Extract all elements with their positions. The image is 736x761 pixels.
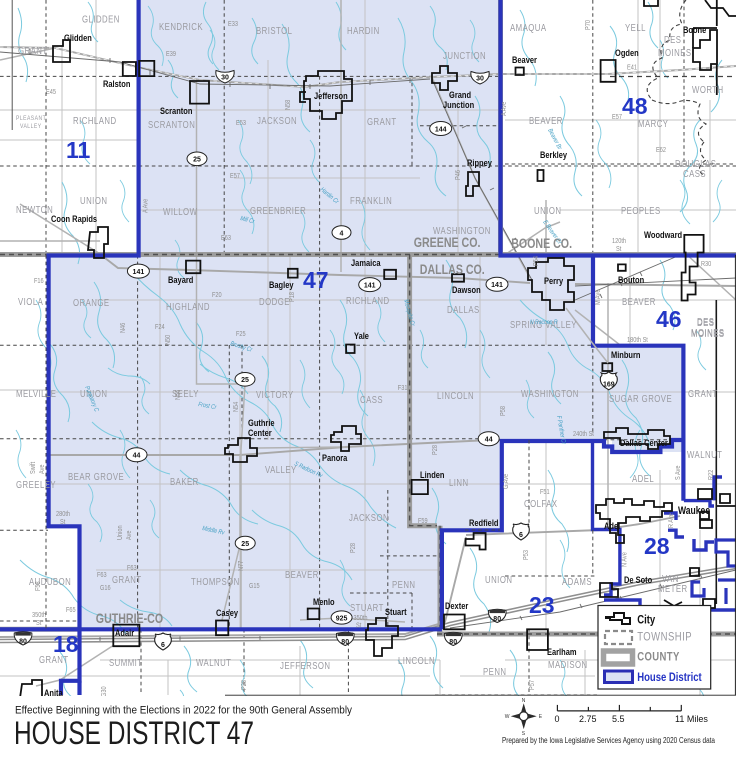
svg-text:80: 80: [493, 616, 501, 623]
svg-text:LINCOLN: LINCOLN: [437, 390, 474, 401]
svg-text:N56: N56: [174, 389, 182, 400]
svg-text:Union: Union: [116, 525, 124, 540]
svg-text:4: 4: [340, 230, 344, 237]
svg-text:5.5: 5.5: [612, 714, 625, 724]
svg-text:N54: N54: [232, 401, 240, 412]
svg-text:Rippey: Rippey: [467, 157, 492, 168]
svg-text:GRANT: GRANT: [367, 116, 397, 127]
svg-text:PEOPLES: PEOPLES: [621, 205, 661, 216]
svg-text:Junction: Junction: [443, 99, 474, 110]
svg-text:St: St: [36, 619, 41, 627]
svg-text:925: 925: [336, 615, 348, 622]
svg-text:P28: P28: [349, 543, 357, 553]
svg-text:BRISTOL: BRISTOL: [256, 25, 292, 36]
svg-text:Coon Rapids: Coon Rapids: [51, 213, 97, 224]
svg-text:WALNUT: WALNUT: [687, 449, 722, 460]
svg-text:Adel: Adel: [604, 520, 620, 531]
svg-text:A Ave: A Ave: [500, 101, 508, 116]
svg-text:St: St: [616, 245, 621, 253]
svg-text:BEAVER: BEAVER: [622, 296, 656, 307]
svg-text:30: 30: [476, 75, 484, 82]
svg-text:0: 0: [555, 714, 560, 724]
svg-text:Beaver: Beaver: [512, 54, 538, 65]
svg-text:PENN: PENN: [483, 666, 507, 677]
svg-text:DES: DES: [697, 316, 714, 327]
svg-text:F63: F63: [97, 571, 107, 579]
svg-text:ADEL: ADEL: [632, 473, 654, 484]
svg-text:VICTORY: VICTORY: [256, 389, 294, 400]
svg-text:Jamaica: Jamaica: [351, 257, 381, 268]
svg-text:VALLEY: VALLEY: [265, 464, 297, 475]
svg-text:Boone: Boone: [683, 24, 706, 35]
svg-text:GRANT: GRANT: [112, 574, 142, 585]
svg-text:N46: N46: [119, 322, 127, 333]
svg-text:BAKER: BAKER: [170, 476, 199, 487]
svg-text:SUGAR GROVE: SUGAR GROVE: [609, 393, 672, 404]
svg-text:Ogden: Ogden: [615, 47, 639, 58]
svg-text:E53: E53: [236, 119, 246, 127]
svg-text:47: 47: [303, 267, 329, 293]
svg-text:S Ave: S Ave: [674, 465, 682, 480]
svg-text:GRANT: GRANT: [688, 388, 718, 399]
svg-text:25: 25: [241, 541, 249, 548]
svg-text:350th: 350th: [32, 611, 46, 619]
svg-text:Panora: Panora: [322, 452, 348, 463]
svg-text:N Racoon R: N Racoon R: [530, 320, 558, 327]
svg-text:80: 80: [19, 639, 27, 646]
svg-text:E63: E63: [221, 234, 231, 242]
svg-text:Ave: Ave: [125, 530, 133, 540]
svg-text:MADISON: MADISON: [548, 659, 588, 670]
svg-text:Linden: Linden: [420, 469, 445, 480]
svg-text:F31: F31: [398, 384, 408, 392]
svg-text:F24: F24: [155, 323, 165, 331]
svg-text:Glidden: Glidden: [64, 32, 92, 43]
svg-text:F63: F63: [127, 564, 137, 572]
svg-text:Waukee: Waukee: [678, 505, 711, 517]
svg-text:E57: E57: [230, 172, 240, 180]
svg-text:Adair: Adair: [115, 627, 135, 638]
svg-text:COLFAX: COLFAX: [524, 498, 558, 509]
svg-text:BEAVER: BEAVER: [285, 569, 319, 580]
svg-text:UNION: UNION: [80, 195, 107, 206]
svg-text:Minburn: Minburn: [611, 349, 640, 360]
svg-text:Perry: Perry: [544, 275, 563, 286]
svg-text:HARDIN: HARDIN: [347, 25, 380, 36]
svg-text:VALLEY: VALLEY: [20, 124, 42, 131]
svg-text:141: 141: [133, 269, 145, 276]
svg-text:LINN: LINN: [449, 477, 469, 488]
svg-text:18: 18: [53, 631, 79, 657]
svg-text:JACKSON: JACKSON: [349, 512, 389, 523]
svg-text:48: 48: [622, 93, 648, 119]
svg-text:141: 141: [491, 282, 503, 289]
svg-text:DODGE: DODGE: [259, 296, 290, 307]
svg-text:Menlo: Menlo: [313, 596, 335, 607]
svg-text:G15: G15: [249, 582, 260, 590]
svg-text:MELVILLE: MELVILLE: [16, 388, 56, 399]
svg-text:25: 25: [241, 377, 249, 384]
svg-text:E62: E62: [656, 146, 666, 154]
svg-text:FRANKLIN: FRANKLIN: [350, 195, 392, 206]
svg-text:VIOLA: VIOLA: [18, 296, 43, 307]
svg-text:N58: N58: [284, 99, 292, 110]
svg-text:LINCOLN: LINCOLN: [398, 655, 435, 666]
svg-text:E41: E41: [627, 64, 637, 72]
svg-text:G Ave: G Ave: [502, 473, 510, 489]
svg-text:Stuart: Stuart: [385, 606, 407, 617]
svg-text:THOMPSON: THOMPSON: [191, 576, 240, 587]
svg-text:MOINES: MOINES: [658, 47, 692, 58]
svg-text:28: 28: [644, 533, 670, 559]
svg-text:F59: F59: [418, 517, 428, 525]
svg-text:WILLOW: WILLOW: [163, 206, 197, 217]
svg-text:Bayard: Bayard: [168, 274, 193, 285]
svg-text:WASHINGTON: WASHINGTON: [521, 388, 579, 399]
svg-text:AMAQUA: AMAQUA: [510, 22, 547, 33]
svg-text:Berkley: Berkley: [540, 149, 567, 160]
svg-text:Center: Center: [248, 427, 272, 438]
svg-text:GUTHRIE-CO: GUTHRIE-CO: [96, 611, 164, 627]
svg-text:UNION: UNION: [485, 574, 512, 585]
svg-text:JEFFERSON: JEFFERSON: [280, 660, 331, 671]
svg-text:N77: N77: [237, 560, 245, 571]
svg-text:N Ave: N Ave: [621, 552, 629, 567]
svg-text:120th: 120th: [612, 237, 626, 245]
svg-text:30: 30: [221, 74, 229, 81]
svg-text:44: 44: [133, 453, 141, 460]
svg-text:BOONE CO.: BOONE CO.: [511, 236, 572, 252]
svg-text:HOUSE DISTRICT 47: HOUSE DISTRICT 47: [14, 715, 254, 751]
svg-text:RICHLAND: RICHLAND: [346, 295, 390, 306]
svg-text:N50: N50: [164, 334, 172, 345]
svg-text:Bagley: Bagley: [269, 279, 294, 290]
svg-text:St: St: [356, 622, 361, 630]
svg-text:Redfield: Redfield: [469, 517, 498, 528]
svg-text:P54: P54: [532, 256, 540, 266]
svg-text:P58: P58: [499, 406, 507, 416]
svg-text:240th St: 240th St: [573, 430, 594, 438]
svg-text:2.75: 2.75: [579, 714, 597, 724]
svg-text:P28: P28: [240, 680, 248, 690]
svg-text:F51: F51: [540, 488, 550, 496]
svg-text:TOWNSHIP: TOWNSHIP: [637, 630, 692, 643]
svg-text:E57: E57: [612, 113, 622, 121]
svg-text:Earlham: Earlham: [547, 646, 577, 657]
svg-text:80: 80: [449, 639, 457, 646]
svg-text:R30: R30: [701, 260, 712, 268]
svg-text:P70: P70: [584, 20, 592, 30]
svg-text:GREELEY: GREELEY: [16, 479, 56, 490]
svg-text:E45: E45: [46, 88, 56, 96]
svg-text:PLEASANT: PLEASANT: [16, 116, 46, 123]
svg-text:Woodward: Woodward: [644, 229, 682, 240]
svg-text:Jefferson: Jefferson: [314, 90, 348, 101]
svg-text:6: 6: [161, 642, 165, 649]
svg-text:G16: G16: [100, 584, 111, 592]
svg-text:Casey: Casey: [216, 607, 238, 618]
svg-text:DALLAS CO.: DALLAS CO.: [420, 262, 485, 278]
svg-text:BEAR GROVE: BEAR GROVE: [68, 471, 124, 482]
svg-text:E33: E33: [228, 20, 238, 28]
svg-text:STUART: STUART: [350, 602, 384, 613]
svg-text:F25: F25: [236, 330, 246, 338]
svg-text:GREENE CO.: GREENE CO.: [414, 235, 481, 251]
svg-text:COUNTY: COUNTY: [637, 650, 680, 663]
svg-text:Yale: Yale: [354, 330, 369, 341]
svg-text:11 Miles: 11 Miles: [675, 714, 708, 724]
svg-text:JUNCTION: JUNCTION: [443, 50, 486, 61]
svg-text:YELL: YELL: [625, 22, 646, 33]
svg-text:Swift: Swift: [29, 462, 37, 474]
svg-text:G30: G30: [100, 686, 108, 697]
svg-text:180th St: 180th St: [627, 336, 648, 344]
svg-text:P18: P18: [288, 292, 296, 302]
svg-text:St: St: [60, 518, 65, 526]
svg-text:UNION: UNION: [534, 205, 561, 216]
svg-text:CASS: CASS: [683, 168, 706, 179]
svg-text:F58: F58: [34, 581, 42, 591]
svg-text:GREENBRIER: GREENBRIER: [250, 205, 306, 216]
svg-text:JACKSON: JACKSON: [257, 115, 297, 126]
svg-text:80: 80: [341, 639, 349, 646]
svg-text:P53: P53: [522, 550, 530, 560]
svg-text:HIGHLAND: HIGHLAND: [166, 301, 210, 312]
svg-text:144: 144: [435, 126, 447, 133]
svg-text:P46: P46: [454, 170, 462, 180]
svg-text:R22: R22: [707, 469, 715, 480]
svg-text:Ave: Ave: [38, 464, 46, 474]
svg-text:P28: P28: [431, 445, 439, 455]
svg-text:Dallas Center: Dallas Center: [620, 437, 668, 448]
svg-text:City: City: [637, 613, 656, 626]
svg-text:23: 23: [529, 592, 555, 618]
svg-text:141: 141: [364, 282, 376, 289]
svg-text:N: N: [522, 698, 526, 704]
svg-text:P57: P57: [528, 680, 536, 690]
svg-text:280th: 280th: [56, 510, 70, 518]
svg-text:Dawson: Dawson: [452, 284, 481, 295]
svg-text:A Ave: A Ave: [142, 198, 150, 213]
svg-text:METER: METER: [658, 583, 688, 594]
svg-text:CASS: CASS: [360, 394, 383, 405]
svg-text:ORANGE: ORANGE: [73, 297, 110, 308]
svg-text:DES: DES: [664, 34, 681, 45]
svg-text:SUMMIT: SUMMIT: [109, 657, 143, 668]
svg-text:E39: E39: [166, 50, 176, 58]
svg-text:BEAVER: BEAVER: [529, 115, 563, 126]
svg-text:GLIDDEN: GLIDDEN: [82, 14, 120, 25]
svg-text:SCRANTON: SCRANTON: [148, 119, 195, 130]
svg-text:PENN: PENN: [392, 579, 416, 590]
svg-text:ADAMS: ADAMS: [562, 576, 592, 587]
svg-text:DALLAS: DALLAS: [447, 304, 480, 315]
svg-text:F65: F65: [66, 606, 76, 614]
svg-text:MARCY: MARCY: [638, 118, 668, 129]
svg-text:House District: House District: [637, 671, 702, 684]
svg-text:44: 44: [485, 437, 493, 444]
svg-text:M Ave: M Ave: [594, 289, 602, 305]
svg-text:Prepared by the Iowa Legislati: Prepared by the Iowa Legislative Service…: [502, 736, 716, 745]
svg-text:GRANT: GRANT: [18, 45, 48, 56]
svg-text:169: 169: [603, 381, 615, 388]
svg-text:Dexter: Dexter: [445, 600, 469, 611]
svg-text:Ralston: Ralston: [103, 78, 130, 89]
svg-text:De Soto: De Soto: [624, 574, 652, 585]
svg-text:Scranton: Scranton: [160, 105, 192, 116]
svg-text:F20: F20: [212, 291, 222, 299]
svg-text:11: 11: [66, 137, 91, 163]
svg-text:MOINES: MOINES: [691, 327, 725, 338]
svg-text:25: 25: [193, 157, 201, 164]
svg-text:46: 46: [656, 306, 682, 332]
svg-text:WALNUT: WALNUT: [196, 657, 231, 668]
svg-text:WORTH: WORTH: [692, 84, 724, 95]
svg-text:F16: F16: [34, 277, 44, 285]
svg-text:Bouton: Bouton: [618, 274, 644, 285]
svg-text:R Ave: R Ave: [667, 513, 675, 528]
svg-text:RICHLAND: RICHLAND: [73, 115, 117, 126]
svg-text:NEWTON: NEWTON: [16, 204, 53, 215]
svg-text:W: W: [505, 714, 510, 720]
svg-text:6: 6: [519, 532, 523, 539]
svg-text:KENDRICK: KENDRICK: [159, 21, 203, 32]
